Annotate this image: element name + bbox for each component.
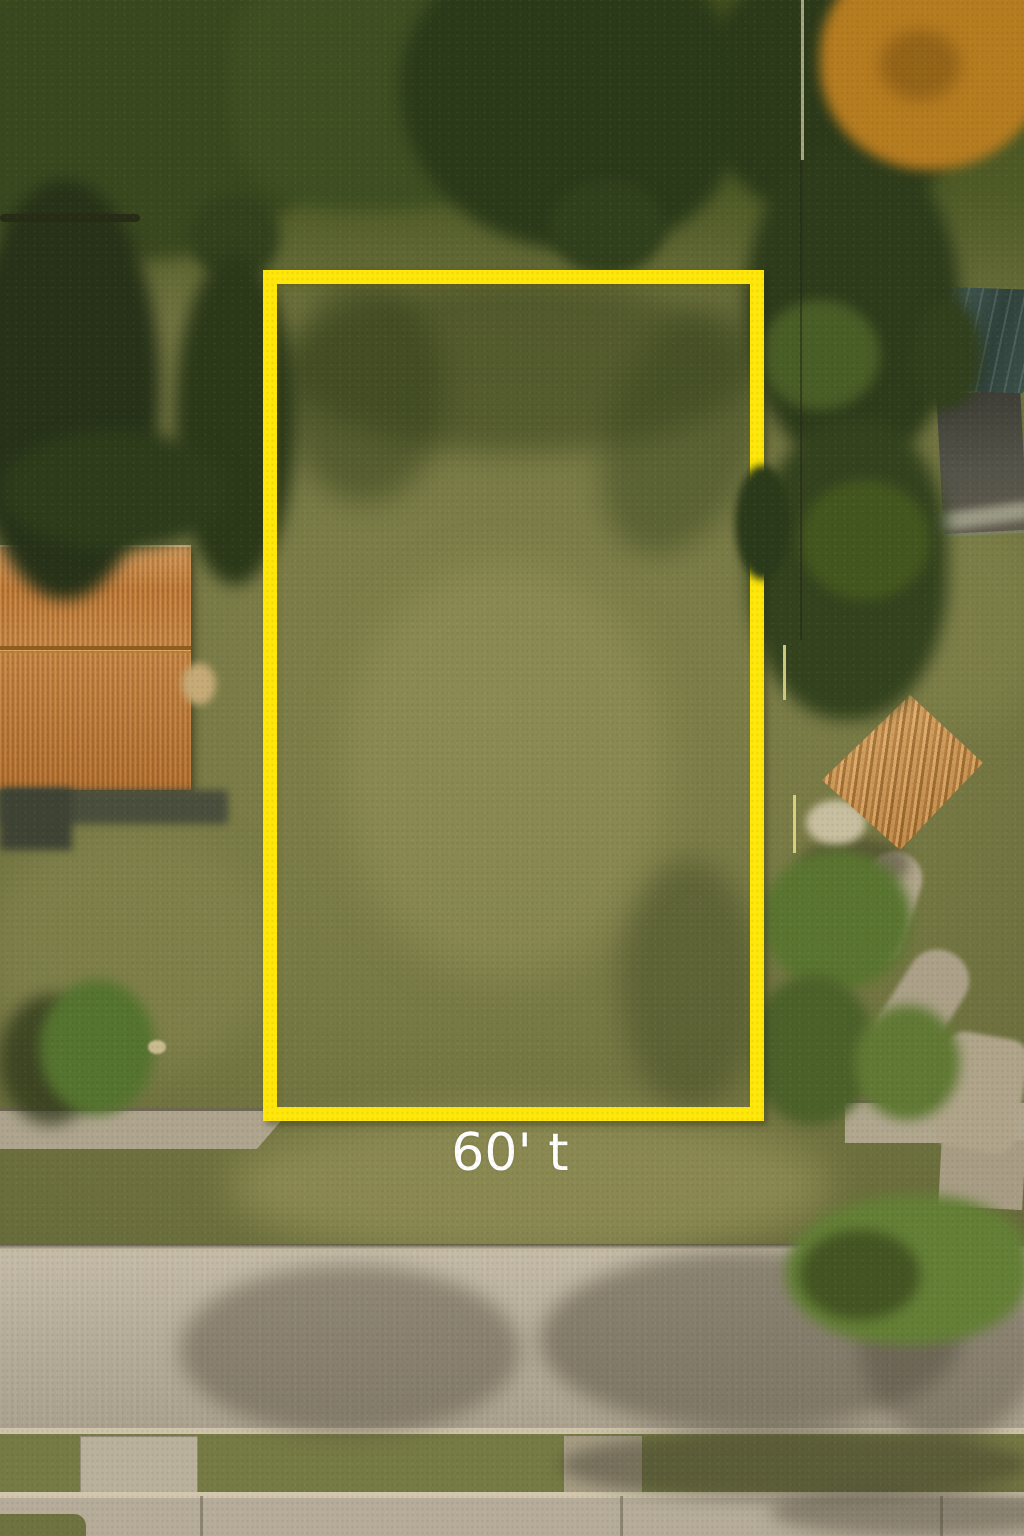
- tree-highlight-right-2: [800, 480, 930, 600]
- stones-right-of-house: [182, 663, 216, 705]
- fence-line: [0, 214, 140, 222]
- stone-bottom-left: [148, 1040, 166, 1054]
- house-roof-ridge: [0, 646, 191, 653]
- property-boundary-overlay: [263, 270, 764, 1121]
- house-porch-left: [0, 788, 72, 850]
- utility-wire-glint-1: [783, 645, 786, 700]
- sidewalk-joint-1: [200, 1496, 203, 1536]
- grass-notch-bottom-left: [0, 1514, 86, 1536]
- utility-wire-glint-2: [793, 795, 796, 853]
- dimension-label: 60' t: [400, 1126, 620, 1181]
- bush-top-center: [550, 180, 665, 275]
- bush-over-tarp: [912, 300, 982, 410]
- tree-bottom-left: [40, 980, 155, 1115]
- tree-highlight-right-1: [760, 300, 880, 410]
- shrubs-right-of-lot-3: [855, 1005, 960, 1120]
- shrubs-right-of-lot-1: [762, 850, 912, 990]
- utility-wire-upper: [801, 0, 804, 160]
- driveway-pad: [80, 1436, 198, 1494]
- road-shadow-1: [180, 1265, 520, 1435]
- sidewalk-joint-2: [620, 1496, 623, 1536]
- foliage-over-boundary: [735, 465, 790, 580]
- tree-over-road-core: [800, 1230, 920, 1320]
- utility-wire-mid: [800, 160, 802, 640]
- autumn-tree-dark-spot: [880, 30, 960, 100]
- trees-above-house: [0, 430, 230, 550]
- aerial-photo-stage: 60' t: [0, 0, 1024, 1536]
